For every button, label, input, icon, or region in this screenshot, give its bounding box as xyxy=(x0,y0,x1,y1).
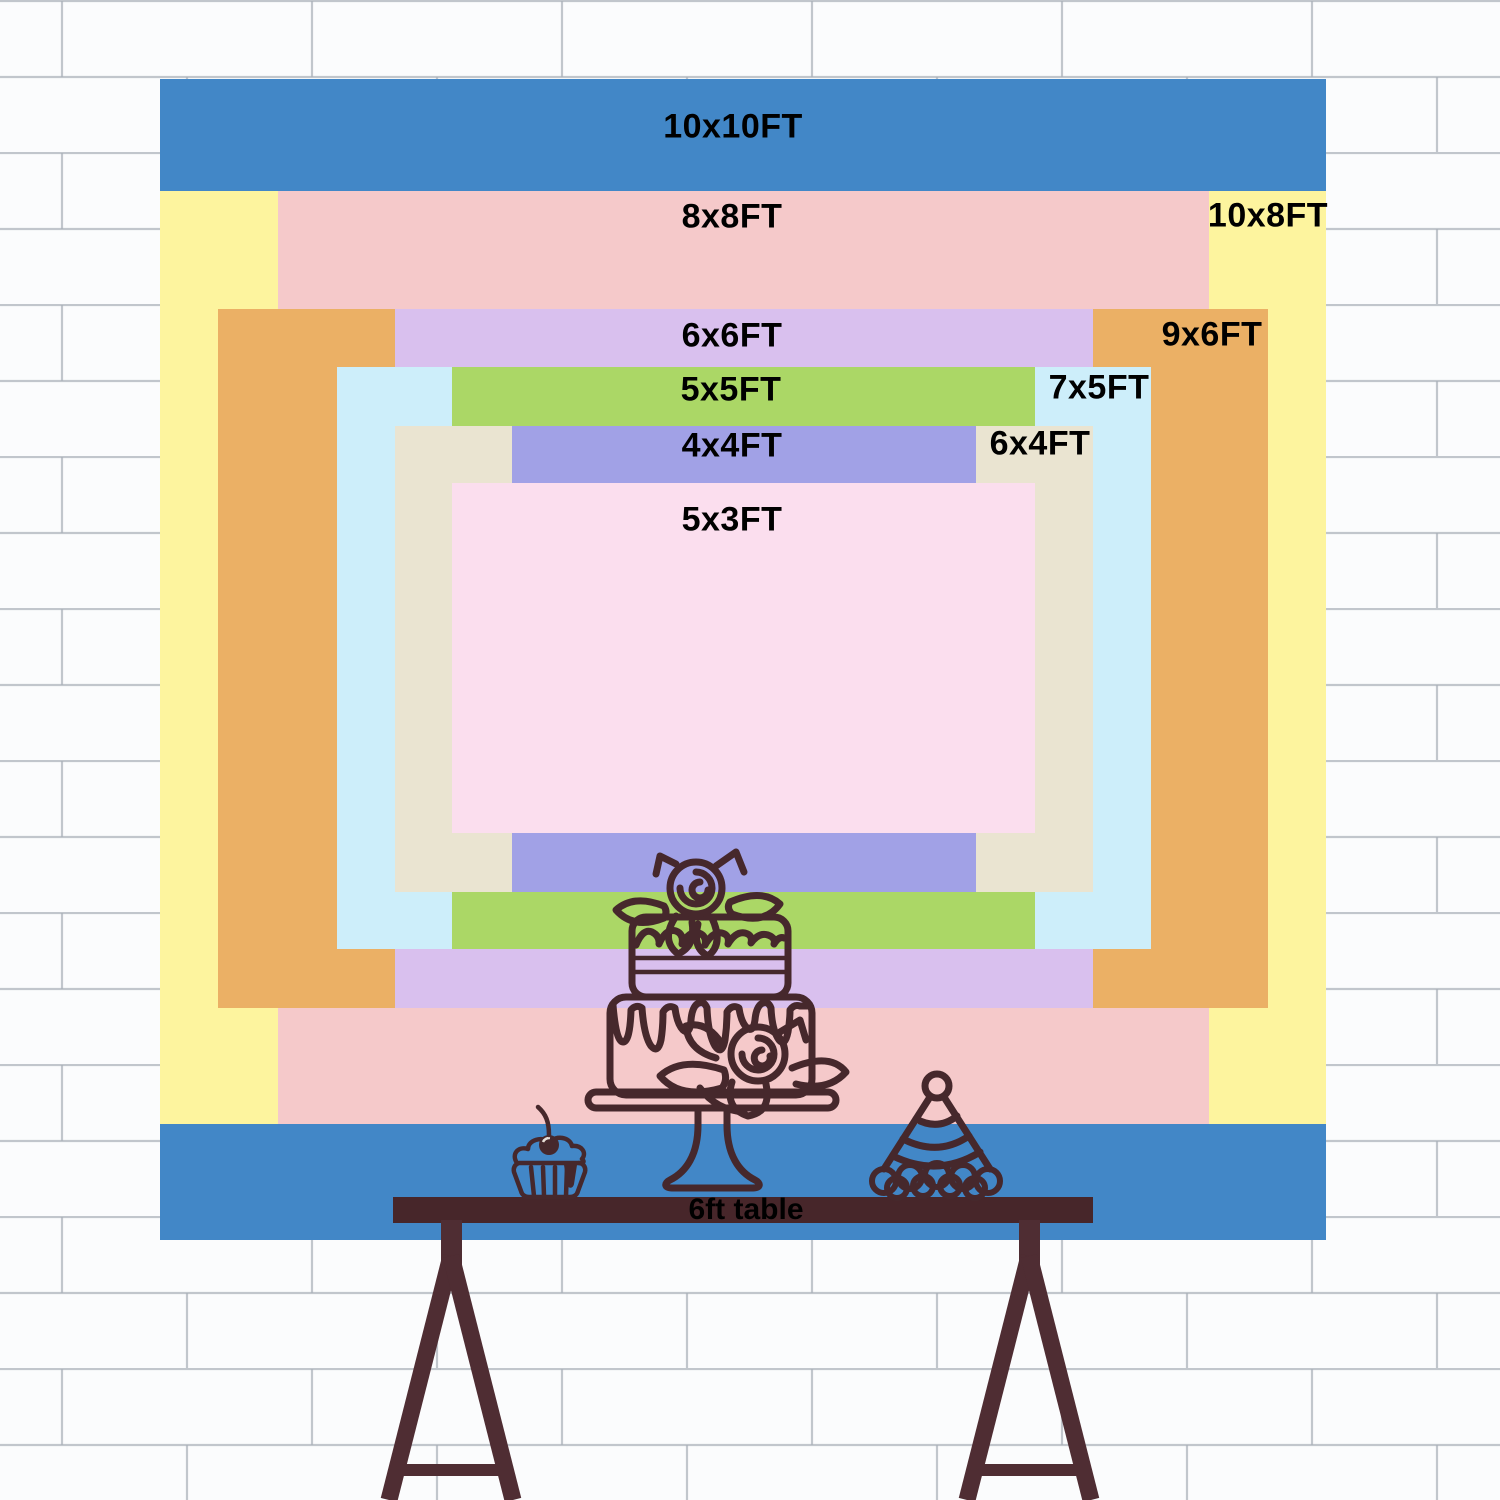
size-label-10x8ft: 10x8FT xyxy=(1208,197,1328,236)
size-label-4x4ft: 4x4FT xyxy=(682,427,783,466)
table-size-label: 6ft table xyxy=(688,1193,803,1227)
size-label-5x5ft: 5x5FT xyxy=(681,371,782,410)
backdrop: 10x10FT10x8FT8x8FT9x6FT6x6FT7x5FT5x5FT6x… xyxy=(0,0,1500,1500)
size-label-6x6ft: 6x6FT xyxy=(682,317,783,356)
size-label-10x10ft: 10x10FT xyxy=(663,108,803,147)
backdrop-size-chart-scene: 10x10FT10x8FT8x8FT9x6FT6x6FT7x5FT5x5FT6x… xyxy=(0,0,1500,1500)
size-label-5x3ft: 5x3FT xyxy=(682,501,783,540)
size-label-7x5ft: 7x5FT xyxy=(1049,369,1150,408)
size-label-6x4ft: 6x4FT xyxy=(990,425,1091,464)
size-label-8x8ft: 8x8FT xyxy=(682,198,783,237)
size-label-9x6ft: 9x6FT xyxy=(1162,316,1263,355)
